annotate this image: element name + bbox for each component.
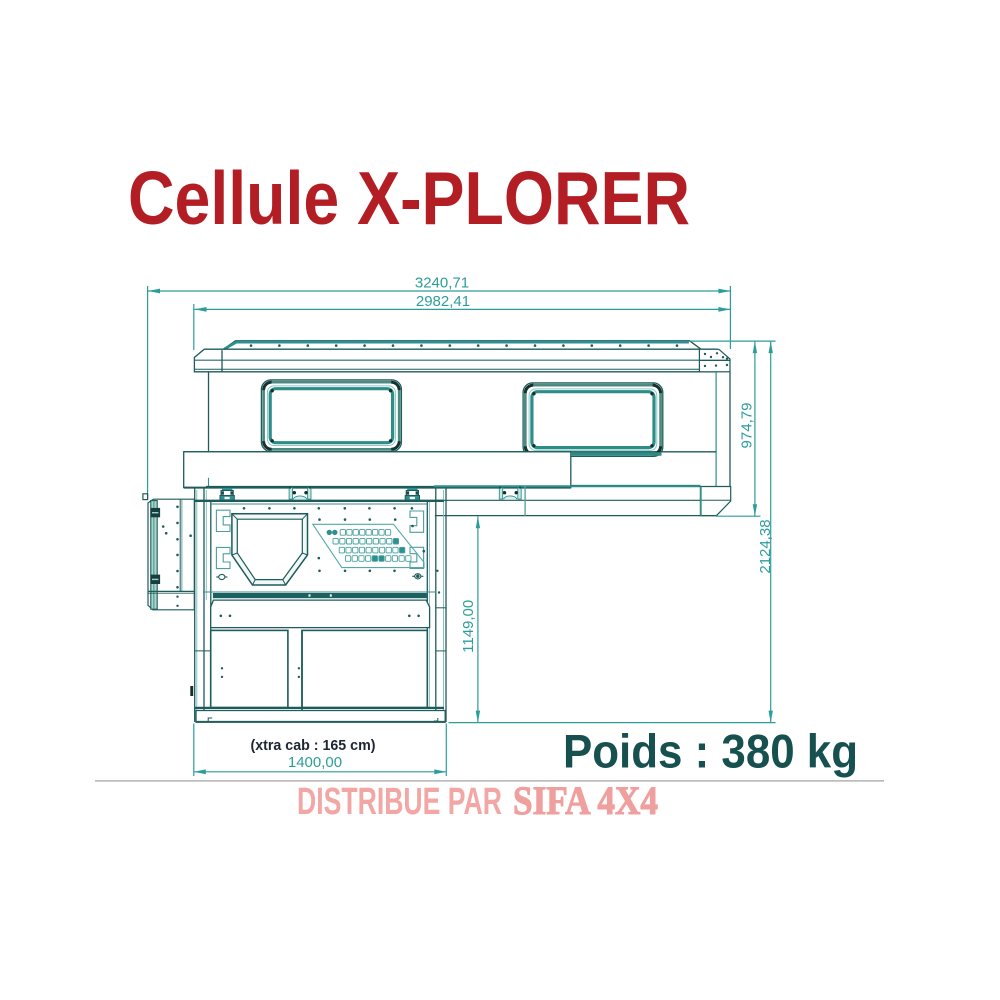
svg-text:Cellule X-PLORER: Cellule X-PLORER	[128, 156, 690, 240]
svg-text:1400,00: 1400,00	[288, 754, 342, 771]
svg-text:(xtra cab : 165 cm): (xtra cab : 165 cm)	[251, 737, 376, 754]
svg-text:1149,00: 1149,00	[460, 600, 477, 653]
svg-text:2124,38: 2124,38	[757, 519, 774, 573]
svg-text:DISTRIBUE PAR: DISTRIBUE PAR	[297, 781, 502, 823]
svg-text:3240,71: 3240,71	[415, 275, 469, 292]
svg-text:974,79: 974,79	[739, 403, 756, 449]
svg-text:2982,41: 2982,41	[416, 293, 470, 310]
svg-text:Poids : 380 kg: Poids : 380 kg	[563, 725, 858, 778]
svg-text:SIFA 4X4: SIFA 4X4	[513, 778, 658, 823]
